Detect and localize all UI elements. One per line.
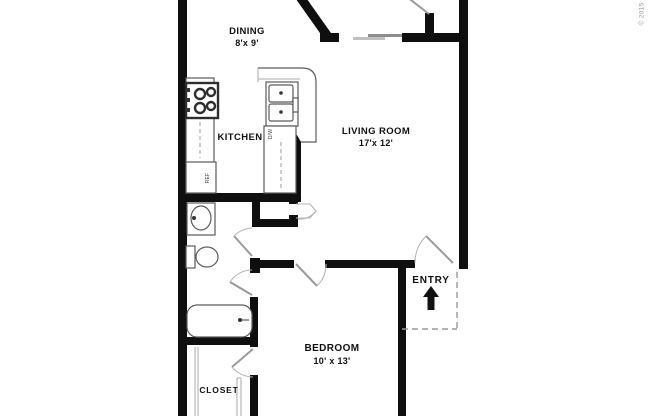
entry-label: ENTRY (412, 275, 450, 286)
wall-closet-right (250, 375, 258, 416)
wall-right (459, 0, 468, 269)
copyright-text: © 2015 (639, 3, 646, 26)
bedroom-door (296, 264, 326, 286)
bedroom-door-leaf (296, 264, 317, 286)
wall-hall-closet-bottom (252, 219, 294, 227)
wall-dining-diagonal (300, 0, 329, 38)
bathroom-hall-door-arc (234, 228, 252, 236)
sliding-door-panel-inner (368, 34, 402, 37)
vanity-sink (187, 203, 215, 235)
stove-burner (207, 88, 215, 96)
sliding-door (353, 34, 402, 40)
bedroom-name: BEDROOM (304, 342, 359, 355)
bathtub-faucet (238, 318, 242, 322)
bedroom-dims: 10' x 13' (304, 355, 359, 368)
floor-plan: DINING 8'x 9' KITCHEN LIVING ROOM 17'x 1… (0, 0, 652, 416)
bedroom-label: BEDROOM 10' x 13' (304, 342, 359, 368)
dishwasher-label: D/W (268, 129, 274, 139)
kitchen-peninsula (258, 68, 316, 193)
bathtub (187, 305, 252, 337)
bathroom-fixtures (186, 203, 252, 337)
stove-knob (187, 98, 190, 102)
wall-jamb-bottom (289, 215, 298, 227)
entry-door (415, 236, 453, 263)
dining-room-dims: 8'x 9' (229, 38, 265, 50)
stove-knob (187, 88, 190, 92)
bathroom-hall-door (234, 228, 252, 256)
hall-closet-door-leaf (296, 204, 316, 218)
living-room-label: LIVING ROOM 17'x 12' (342, 126, 410, 149)
sliding-door-panel-outer (353, 37, 385, 40)
stove-knob (187, 108, 190, 112)
living-room-name: LIVING ROOM (342, 126, 410, 138)
stove (186, 83, 218, 118)
bathroom-hall-door-leaf (234, 236, 252, 256)
refrigerator (186, 162, 216, 193)
wall-left (178, 0, 187, 416)
vanity-faucet (192, 216, 196, 220)
sink-drain (279, 110, 283, 114)
closet-partitions (195, 347, 241, 416)
wall-bedroom-right (398, 262, 406, 416)
dining-room-name: DINING (229, 26, 265, 38)
toilet-bowl (196, 247, 218, 267)
closet-door-arc (232, 367, 253, 377)
wall-kitchen-bottom (178, 193, 301, 202)
bathtub-outline (187, 305, 252, 337)
wall-top-right (402, 33, 468, 42)
entry-door-arc (415, 236, 426, 263)
closet-label: CLOSET (199, 385, 238, 395)
bedroom-door-arc (317, 264, 326, 286)
stove-burner (195, 103, 205, 113)
sink-handle (293, 98, 298, 112)
refrigerator-label: REF (205, 173, 211, 184)
wall-jamb-top (289, 194, 298, 204)
back-door-leaf (407, 0, 429, 14)
dining-label: DINING 8'x 9' (229, 26, 265, 49)
entry-direction-arrow (423, 286, 439, 310)
wall-diagonal-foot (320, 33, 339, 42)
wall-bedroom-top-left (252, 260, 294, 268)
closet-door-leaf (232, 349, 253, 367)
stove-burner (195, 89, 205, 99)
bathroom-bedroom-door (230, 270, 252, 295)
kitchen-label: KITCHEN (217, 132, 262, 144)
closet-door (232, 349, 253, 377)
hall-closet-door (296, 204, 316, 219)
wall-stub-back-door (425, 13, 434, 37)
stove-burner (207, 102, 215, 110)
toilet-tank (186, 246, 195, 268)
entry-door-leaf (426, 236, 453, 263)
wall-bath-closet (178, 337, 258, 345)
bathroom-bedroom-door-arc (230, 270, 252, 282)
bathroom-bedroom-door-leaf (230, 282, 252, 295)
sink-drain (279, 91, 283, 95)
toilet (186, 246, 218, 268)
living-room-dims: 17'x 12' (342, 138, 410, 150)
